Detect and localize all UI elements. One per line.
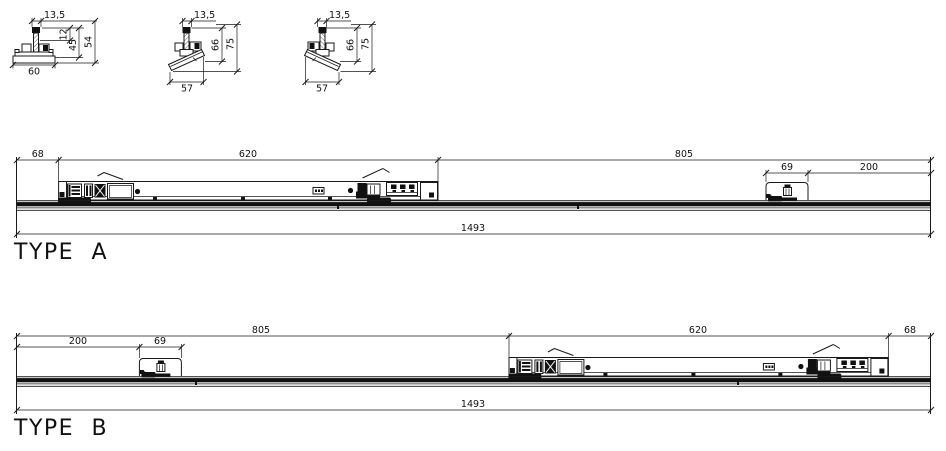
dim-right-offset-label: 68 <box>904 325 916 336</box>
flange <box>15 52 53 56</box>
drawing-canvas: 13,5 12 45 54 60 13,5 66 <box>0 0 946 451</box>
dim-trolley-label: 69 <box>781 162 793 173</box>
dim-left-offset-label: 68 <box>32 149 44 160</box>
type-a-title: TYPE A <box>13 240 108 265</box>
dim-total-label: 1493 <box>461 399 485 410</box>
dim-top-width-label: 13,5 <box>194 10 215 21</box>
rail-bar <box>17 377 931 387</box>
dim-mid-height-label: 45 <box>68 39 79 51</box>
dim-total-height-label: 75 <box>226 38 237 50</box>
drive-carriage <box>58 169 438 204</box>
base-plate <box>13 56 55 63</box>
section-view-flat: 13,5 12 45 54 60 <box>10 10 99 78</box>
dim-top-width-label: 13,5 <box>44 10 65 21</box>
dim-total-label: 1493 <box>461 223 485 234</box>
rail-stem <box>34 33 39 52</box>
dim-base-width-label: 57 <box>316 84 328 95</box>
dim-carriage-label: 620 <box>239 149 257 160</box>
dim-stem-offset-label: 12 <box>59 28 70 40</box>
dim-mid-height-label: 66 <box>346 39 357 51</box>
dim-trolley-label: 69 <box>154 336 166 347</box>
type-a-view: 68 620 805 69 200 1493 TYPE A <box>13 149 934 265</box>
drive-carriage <box>508 345 888 380</box>
tilted-profile <box>169 27 205 71</box>
technical-drawing: 13,5 12 45 54 60 13,5 66 <box>0 0 946 451</box>
dim-left-offset-label: 200 <box>69 336 87 347</box>
dim-right-offset-label: 200 <box>860 162 878 173</box>
type-b-view: 805 620 68 200 69 1493 TYPE B <box>13 325 934 441</box>
end-trolley <box>766 183 808 202</box>
dim-base-width-label: 60 <box>28 67 40 78</box>
stem-cap <box>32 27 40 33</box>
dim-total-height-label: 75 <box>361 38 372 50</box>
dim-left-span-label: 805 <box>252 325 270 336</box>
dim-right-span-label: 805 <box>675 149 693 160</box>
section-view-tilt-right: 13,5 66 75 57 <box>303 10 377 95</box>
tilted-profile-mirrored <box>305 27 341 71</box>
dim-total-height-label: 54 <box>84 36 95 48</box>
rail-bar <box>17 201 931 211</box>
end-trolley <box>139 359 181 378</box>
section-view-tilt-left: 13,5 66 75 57 <box>167 10 241 95</box>
dim-mid-height-label: 66 <box>211 39 222 51</box>
dim-carriage-label: 620 <box>689 325 707 336</box>
left-clamp <box>22 44 31 52</box>
dim-base-width-label: 57 <box>181 84 193 95</box>
dim-top-width-label: 13,5 <box>329 10 350 21</box>
type-b-title: TYPE B <box>13 416 108 441</box>
